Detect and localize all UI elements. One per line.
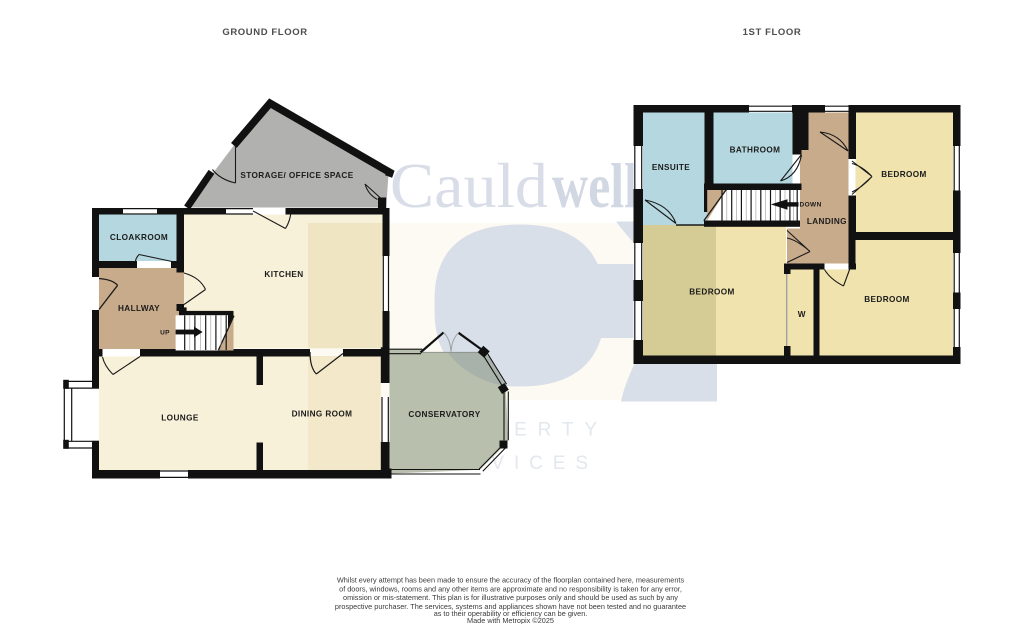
svg-text:LOUNGE: LOUNGE [161, 414, 199, 423]
svg-text:BEDROOM: BEDROOM [881, 170, 927, 179]
svg-text:well: well [552, 150, 638, 221]
svg-text:HALLWAY: HALLWAY [118, 304, 160, 313]
svg-text:DOWN: DOWN [800, 202, 822, 209]
svg-text:LANDING: LANDING [807, 217, 847, 226]
svg-text:KITCHEN: KITCHEN [264, 270, 303, 279]
svg-text:Whilst every attempt has been: Whilst every attempt has been made to en… [337, 576, 685, 585]
svg-text:DINING ROOM: DINING ROOM [292, 410, 353, 419]
svg-text:BEDROOM: BEDROOM [864, 295, 910, 304]
svg-text:1ST FLOOR: 1ST FLOOR [743, 27, 802, 38]
svg-text:of doors, windows, rooms and a: of doors, windows, rooms and any other i… [339, 584, 682, 593]
svg-text:W: W [798, 310, 806, 319]
svg-text:CONSERVATORY: CONSERVATORY [408, 410, 480, 419]
svg-text:GROUND FLOOR: GROUND FLOOR [222, 27, 307, 38]
svg-text:UP: UP [160, 330, 170, 337]
svg-text:Made with Metropix ©2025: Made with Metropix ©2025 [467, 616, 554, 624]
svg-text:BEDROOM: BEDROOM [689, 288, 735, 297]
svg-text:CLOAKROOM: CLOAKROOM [110, 233, 168, 242]
svg-text:BATHROOM: BATHROOM [730, 145, 781, 154]
svg-text:ENSUITE: ENSUITE [652, 163, 690, 172]
svg-text:omission or mis-statement. Thi: omission or mis-statement. This plan is … [343, 593, 678, 602]
svg-text:STORAGE/ OFFICE SPACE: STORAGE/ OFFICE SPACE [240, 171, 353, 180]
svg-text:Cauld: Cauld [390, 150, 548, 221]
